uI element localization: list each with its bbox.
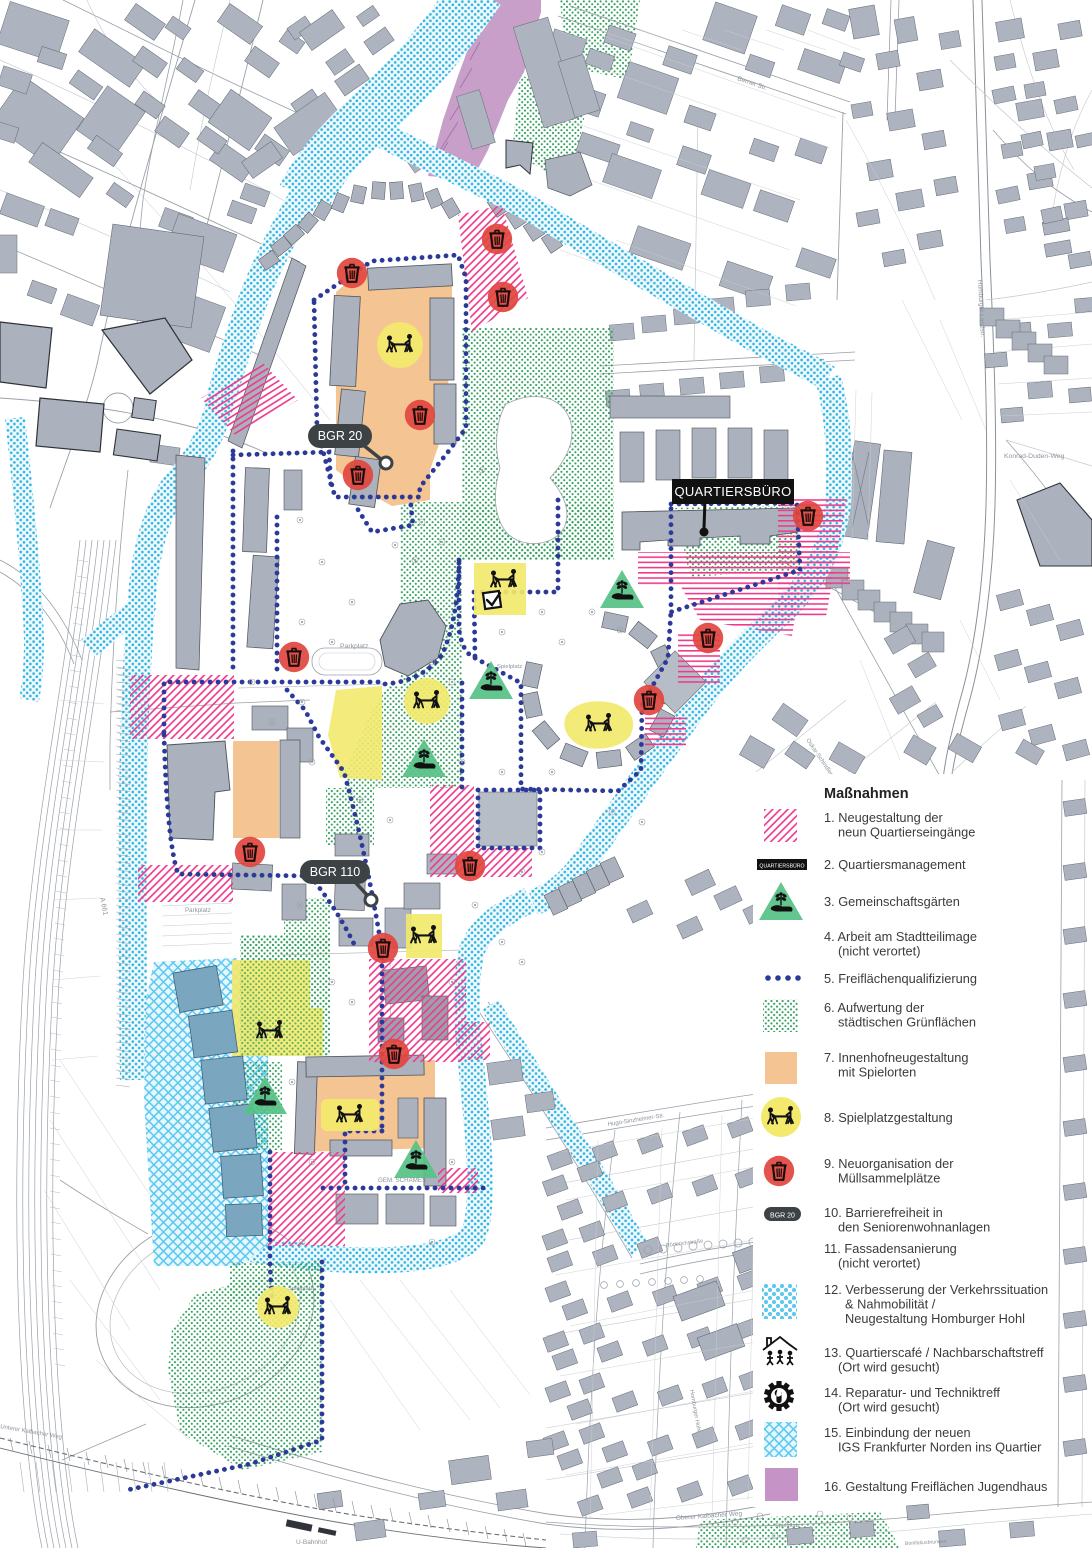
svg-text:(nicht verortet): (nicht verortet) — [838, 944, 921, 959]
svg-text:11. Fassadensanierung: 11. Fassadensanierung — [824, 1241, 957, 1256]
svg-text:2. Quartiersmanagement: 2. Quartiersmanagement — [824, 857, 966, 872]
svg-text:9. Neuorganisation der: 9. Neuorganisation der — [824, 1156, 954, 1171]
svg-text:13. Quartierscafé / Nachbarsch: 13. Quartierscafé / Nachbarschaftstreff — [824, 1345, 1044, 1360]
svg-text:Parkplatz: Parkplatz — [185, 907, 211, 914]
svg-text:Maßnahmen: Maßnahmen — [824, 786, 909, 802]
svg-text:12. Verbesserung der Verkehrss: 12. Verbesserung der Verkehrssituation — [824, 1282, 1048, 1297]
svg-text:Konrad-Duden-Weg: Konrad-Duden-Weg — [1004, 453, 1065, 460]
svg-text:8. Spielplatzgestaltung: 8. Spielplatzgestaltung — [824, 1110, 953, 1125]
svg-text:Spielplatz: Spielplatz — [497, 664, 522, 670]
svg-text:QUARTIERSBÜRO: QUARTIERSBÜRO — [674, 484, 791, 499]
svg-text:3. Gemeinschaftsgärten: 3. Gemeinschaftsgärten — [824, 894, 960, 909]
svg-text:16. Gestaltung Freiflächen Jug: 16. Gestaltung Freiflächen Jugendhaus — [824, 1479, 1047, 1494]
svg-text:städtischen Grünflächen: städtischen Grünflächen — [838, 1015, 976, 1030]
svg-text:14. Reparatur- und Techniktref: 14. Reparatur- und Techniktreff — [824, 1385, 1000, 1400]
svg-text:Neugestaltung Homburger Hohl: Neugestaltung Homburger Hohl — [845, 1311, 1025, 1326]
svg-text:GEM. SCHAMES: GEM. SCHAMES — [378, 1177, 426, 1184]
svg-text:& Nahmobilität /: & Nahmobilität / — [845, 1297, 936, 1312]
svg-text:BGR 20: BGR 20 — [770, 1213, 795, 1220]
svg-text:BGR 110: BGR 110 — [310, 865, 361, 879]
svg-text:Müllsammelplätze: Müllsammelplätze — [838, 1171, 940, 1186]
svg-text:5. Freiflächenqualifizierung: 5. Freiflächenqualifizierung — [824, 971, 977, 986]
svg-text:neun Quartierseingänge: neun Quartierseingänge — [838, 825, 975, 840]
svg-text:mit Spielorten: mit Spielorten — [838, 1065, 916, 1080]
svg-text:(Ort wird gesucht): (Ort wird gesucht) — [838, 1400, 940, 1415]
svg-text:den Seniorenwohnanlagen: den Seniorenwohnanlagen — [838, 1220, 990, 1235]
svg-text:1. Neugestaltung der: 1. Neugestaltung der — [824, 810, 944, 825]
svg-text:(nicht verortet): (nicht verortet) — [838, 1256, 921, 1271]
svg-text:QUARTIERSBÜRO: QUARTIERSBÜRO — [759, 863, 804, 870]
svg-text:10. Barrierefreiheit in: 10. Barrierefreiheit in — [824, 1205, 943, 1220]
svg-text:Spielplatz: Spielplatz — [288, 1286, 313, 1292]
svg-text:BGR 20: BGR 20 — [318, 429, 363, 443]
svg-text:IGS Frankfurter Norden ins Qua: IGS Frankfurter Norden ins Quartier — [838, 1440, 1042, 1455]
svg-text:6. Aufwertung der: 6. Aufwertung der — [824, 1000, 925, 1015]
svg-text:Parkplatz: Parkplatz — [340, 643, 369, 650]
svg-text:(Ort wird gesucht): (Ort wird gesucht) — [838, 1360, 940, 1375]
svg-text:Spielplatz: Spielplatz — [775, 1523, 800, 1529]
svg-text:4. Arbeit am Stadtteilimage: 4. Arbeit am Stadtteilimage — [824, 929, 977, 944]
svg-text:15. Einbindung der neuen: 15. Einbindung der neuen — [824, 1425, 971, 1440]
svg-text:7. Innenhofneugestaltung: 7. Innenhofneugestaltung — [824, 1050, 968, 1065]
svg-text:U-Bahnhof: U-Bahnhof — [296, 1539, 327, 1546]
